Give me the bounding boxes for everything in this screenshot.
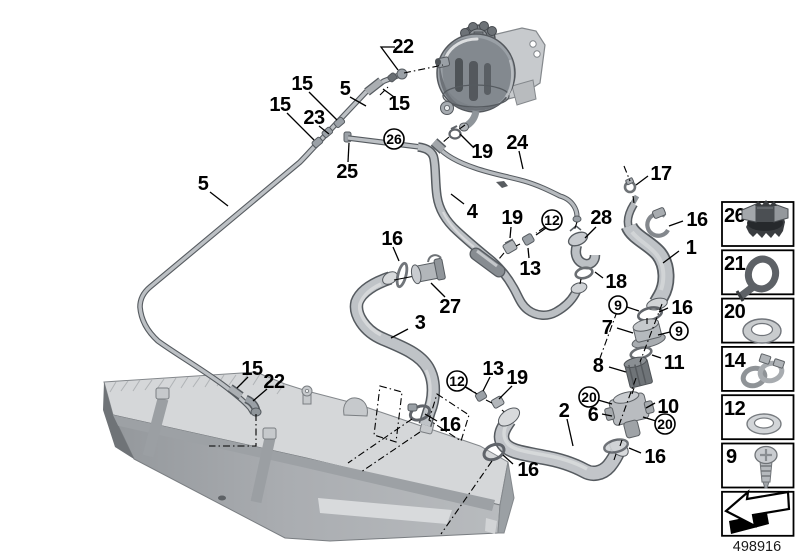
svg-text:20: 20 [581, 389, 597, 405]
svg-text:19: 19 [471, 141, 493, 163]
svg-text:1: 1 [686, 237, 697, 259]
svg-text:18: 18 [605, 271, 627, 293]
svg-text:22: 22 [392, 36, 414, 58]
svg-text:5: 5 [340, 78, 351, 100]
svg-text:20: 20 [724, 301, 746, 323]
svg-text:12: 12 [449, 373, 465, 389]
svg-text:11: 11 [664, 352, 685, 374]
svg-text:15: 15 [241, 358, 263, 380]
svg-text:7: 7 [602, 317, 613, 339]
svg-text:20: 20 [657, 416, 673, 432]
svg-text:16: 16 [644, 446, 666, 468]
svg-text:27: 27 [439, 296, 461, 318]
svg-text:4: 4 [467, 201, 479, 223]
svg-text:24: 24 [506, 132, 529, 154]
svg-text:498916: 498916 [733, 539, 781, 555]
svg-text:8: 8 [593, 355, 604, 377]
svg-text:16: 16 [686, 209, 708, 231]
svg-text:25: 25 [336, 161, 358, 183]
svg-text:16: 16 [439, 414, 461, 436]
svg-text:26: 26 [386, 131, 402, 147]
svg-text:2: 2 [559, 400, 570, 422]
svg-text:28: 28 [590, 207, 612, 229]
svg-text:3: 3 [415, 312, 426, 334]
svg-text:22: 22 [263, 371, 285, 393]
svg-text:13: 13 [519, 258, 541, 280]
svg-text:17: 17 [650, 163, 672, 185]
svg-text:9: 9 [726, 446, 737, 468]
svg-text:9: 9 [675, 323, 683, 339]
svg-text:21: 21 [724, 253, 746, 275]
svg-text:15: 15 [269, 94, 291, 116]
svg-text:15: 15 [291, 73, 313, 95]
svg-text:9: 9 [614, 297, 622, 313]
svg-text:15: 15 [388, 93, 410, 115]
svg-text:16: 16 [517, 459, 539, 481]
svg-text:19: 19 [506, 367, 528, 389]
svg-text:19: 19 [501, 207, 523, 229]
svg-text:14: 14 [724, 350, 747, 372]
svg-text:5: 5 [198, 173, 209, 195]
svg-text:12: 12 [724, 398, 746, 420]
svg-text:23: 23 [303, 107, 325, 129]
svg-text:16: 16 [381, 228, 403, 250]
svg-text:16: 16 [671, 297, 693, 319]
svg-text:13: 13 [482, 358, 504, 380]
svg-text:12: 12 [544, 212, 560, 228]
